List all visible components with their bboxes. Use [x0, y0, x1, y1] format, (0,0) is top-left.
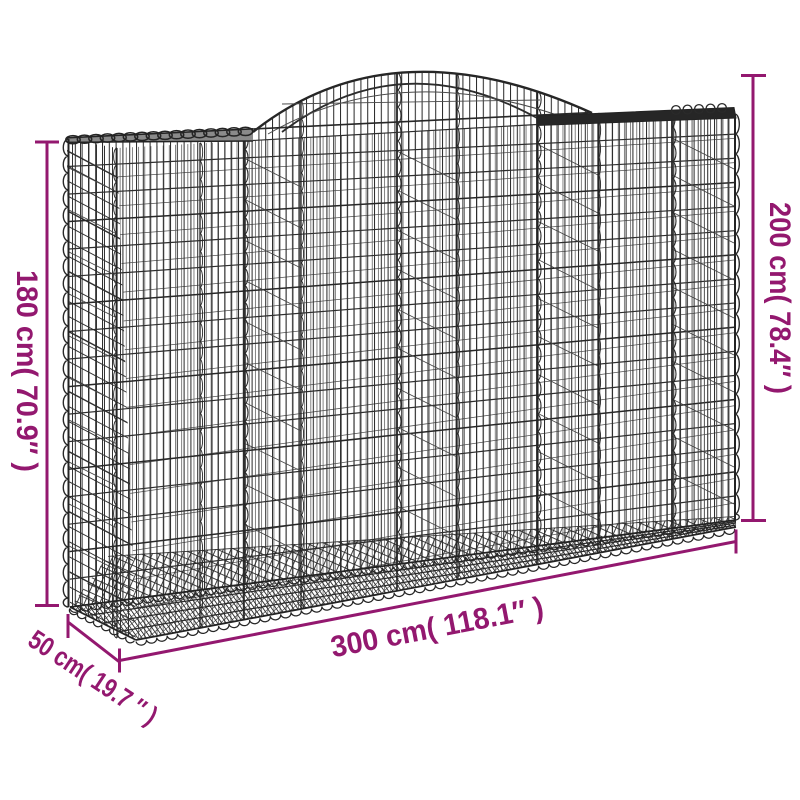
svg-text:180 cm( 70.9″ ): 180 cm( 70.9″ ) — [10, 270, 43, 472]
svg-text:200 cm( 78.4″ ): 200 cm( 78.4″ ) — [763, 202, 796, 394]
